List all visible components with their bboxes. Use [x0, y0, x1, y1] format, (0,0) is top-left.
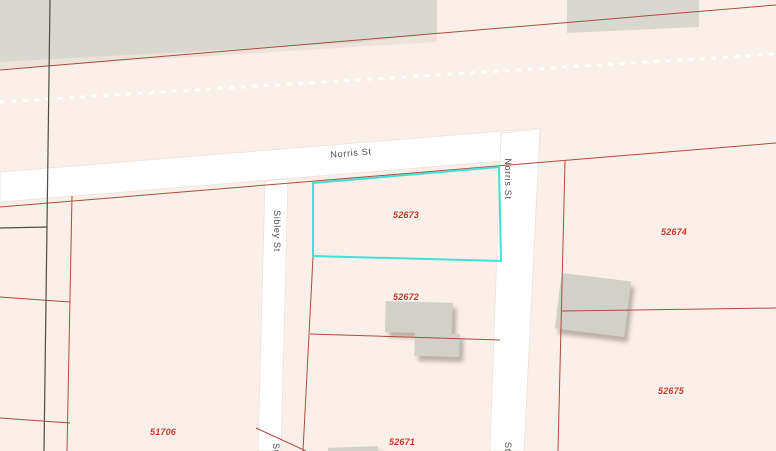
parcel-land-background	[0, 0, 776, 451]
parcel-label: 51706	[150, 427, 176, 437]
parcel-label: 52673	[393, 210, 419, 220]
map-layers	[0, 0, 776, 451]
street-label-norris-st-partial: St	[503, 442, 513, 451]
parcel-label: 52671	[389, 437, 415, 447]
street-label-sibley-st-partial: St	[271, 443, 281, 451]
map-canvas[interactable]: 52673 52674 52672 52675 52671 51706 Norr…	[0, 0, 776, 451]
parcel-label: 52675	[658, 386, 684, 396]
street-label-norris-st-vertical: Norris St	[503, 158, 513, 199]
parcel-label: 52672	[393, 292, 419, 302]
street-label-sibley-st: Sibley St	[272, 210, 282, 252]
parcel-label: 52674	[661, 227, 687, 237]
building-parcel-52674	[555, 273, 631, 337]
